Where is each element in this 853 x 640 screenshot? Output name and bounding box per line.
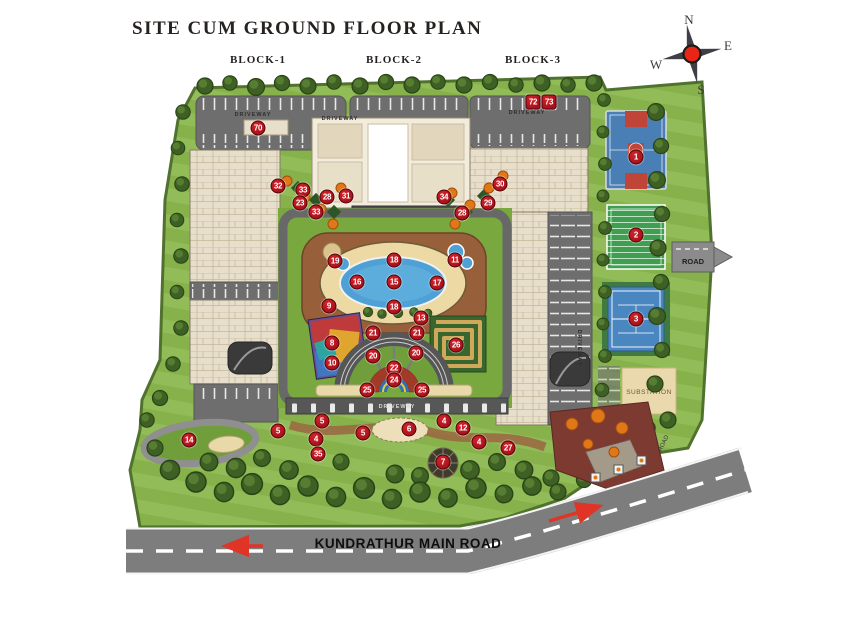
tree-icon — [648, 104, 665, 121]
tree-icon — [170, 213, 184, 227]
tree-icon — [599, 158, 612, 171]
tree-icon — [363, 307, 373, 317]
tree-icon — [410, 482, 430, 502]
tree-icon — [653, 274, 668, 289]
road-stub-right: ROAD — [672, 242, 732, 272]
compass-e-label: E — [724, 38, 732, 53]
compass-w-label: W — [650, 57, 663, 72]
tree-icon — [466, 478, 486, 498]
tree-icon — [140, 413, 154, 427]
tree-icon — [482, 74, 497, 89]
compass-s-label: S — [697, 82, 704, 97]
compass-n-label: N — [684, 12, 694, 27]
tree-icon — [147, 440, 163, 456]
tree-icon — [660, 412, 676, 428]
tree-icon — [174, 249, 188, 263]
driveway-label-5: DRIVEWAY — [576, 330, 582, 367]
flowering-tree-icon — [328, 219, 338, 229]
circular-plaza — [428, 448, 458, 478]
tree-icon — [170, 285, 184, 299]
tree-icon — [597, 126, 609, 138]
tree-icon — [214, 482, 233, 501]
flowering-tree-icon — [447, 188, 457, 198]
tree-icon — [599, 222, 612, 235]
tree-icon — [166, 357, 180, 371]
flowering-tree-icon — [498, 171, 508, 181]
flowering-tree-icon — [336, 183, 346, 193]
flowering-tree-icon — [282, 176, 292, 186]
tree-icon — [597, 318, 609, 330]
tree-icon — [174, 321, 188, 335]
tree-icon — [152, 390, 167, 405]
tree-icon — [647, 376, 663, 392]
tree-icon — [254, 450, 271, 467]
tree-icon — [378, 74, 393, 89]
tree-icon — [424, 309, 432, 317]
site-plan-canvas: SUBSTATION ROAD ROAD — [0, 0, 853, 640]
tree-icon — [386, 465, 404, 483]
tree-icon — [226, 458, 245, 477]
tree-icon — [160, 460, 179, 479]
tree-icon — [515, 461, 533, 479]
tree-icon — [654, 342, 669, 357]
tree-icon — [456, 77, 472, 93]
tree-icon — [410, 308, 419, 317]
tree-icon — [242, 474, 263, 495]
tree-icon — [248, 79, 265, 96]
block-2-label: BLOCK-2 — [366, 54, 422, 66]
tree-icon — [461, 461, 479, 479]
driveway-label-4: DRIVEWAY — [379, 404, 416, 410]
tree-icon — [404, 77, 420, 93]
tree-icon — [197, 78, 213, 94]
driveway-label-2: DRIVEWAY — [322, 116, 359, 122]
tree-icon — [523, 477, 541, 495]
tree-icon — [326, 487, 345, 506]
flowering-tree-icon — [316, 204, 326, 214]
flowering-tree-icon — [484, 183, 494, 193]
tree-icon — [653, 138, 668, 153]
tree-icon — [550, 484, 566, 500]
tree-icon — [597, 190, 609, 202]
tree-icon — [649, 308, 666, 325]
tree-icon — [595, 383, 609, 397]
tree-icon — [171, 141, 185, 155]
tree-icon — [586, 75, 602, 91]
tree-icon — [599, 350, 612, 363]
tree-icon — [599, 286, 612, 299]
tree-icon — [200, 453, 218, 471]
tree-icon — [654, 206, 669, 221]
tree-icon — [649, 172, 666, 189]
tree-icon — [382, 489, 401, 508]
tree-icon — [352, 78, 368, 94]
block-3-label: BLOCK-3 — [505, 54, 561, 66]
tree-icon — [176, 105, 190, 119]
tree-icon — [274, 75, 289, 90]
main-road-label: KUNDRATHUR MAIN ROAD — [315, 536, 502, 551]
tree-icon — [597, 254, 609, 266]
tree-icon — [280, 461, 298, 479]
page-title: SITE CUM GROUND FLOOR PLAN — [132, 18, 482, 40]
tree-icon — [333, 454, 349, 470]
tree-icon — [561, 78, 575, 92]
tree-icon — [378, 310, 387, 319]
driveway-label-3: DRIVEWAY — [509, 110, 546, 116]
tree-icon — [509, 78, 523, 92]
driveway-label-1: DRIVEWAY — [235, 112, 272, 118]
tree-icon — [393, 308, 403, 318]
tree-icon — [534, 75, 550, 91]
tree-icon — [186, 472, 206, 492]
sand-lawn — [372, 418, 428, 442]
tree-icon — [439, 489, 457, 507]
tree-icon — [300, 78, 316, 94]
site-plan-map: SUBSTATION ROAD ROAD — [0, 0, 853, 640]
tree-icon — [327, 75, 341, 89]
tree-icon — [354, 478, 375, 499]
flowering-tree-icon — [300, 192, 310, 202]
tree-icon — [298, 476, 318, 496]
tree-icon — [489, 454, 506, 471]
block1-buildings — [190, 150, 280, 422]
tree-icon — [598, 94, 611, 107]
tree-icon — [175, 177, 189, 191]
block-1-label: BLOCK-1 — [230, 54, 286, 66]
tree-icon — [650, 240, 666, 256]
tree-icon — [431, 75, 445, 89]
tree-icon — [495, 485, 513, 503]
central-courtyard — [278, 181, 512, 414]
tree-icon — [223, 76, 237, 90]
tree-icon — [270, 485, 289, 504]
road-right-label: ROAD — [682, 257, 705, 266]
sports-courts: SUBSTATION — [598, 111, 676, 416]
flowering-tree-icon — [465, 200, 475, 210]
flowering-tree-icon — [450, 219, 460, 229]
